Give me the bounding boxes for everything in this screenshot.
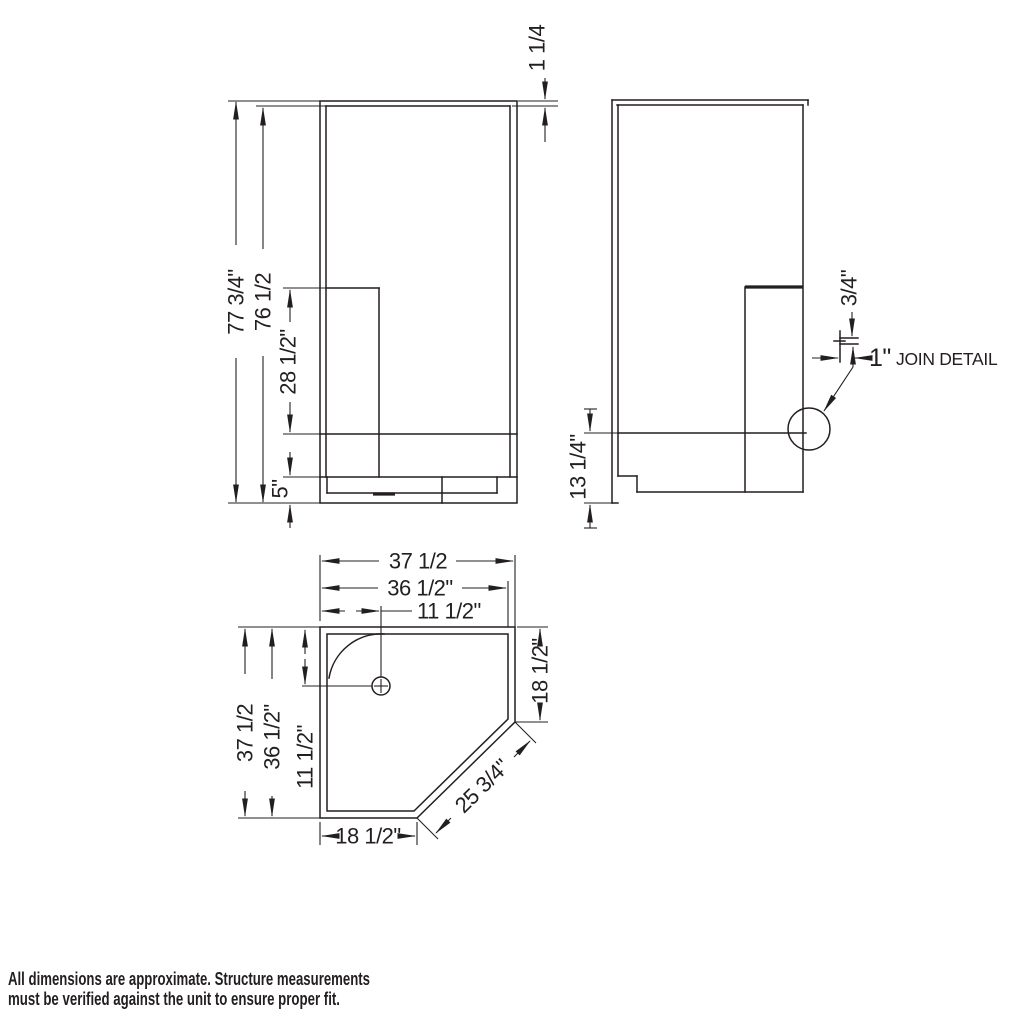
dim-ledge-height-label: 13 1/4" <box>566 434 591 499</box>
shower-enclosure-dimension-drawing: 77 3/4" 76 1/2 28 1/2" 5" 1 1/4 <box>0 0 1024 1013</box>
plan-corner-arc <box>329 634 384 678</box>
side-outline <box>612 100 808 503</box>
join-detail-callout: 3/4" 1" JOIN DETAIL <box>812 270 998 411</box>
front-base-lines <box>320 434 517 503</box>
dim-base-height-label: 5" <box>268 479 293 498</box>
dim-overall-width-label: 37 1/2 <box>389 549 447 574</box>
drain-symbol <box>372 677 390 695</box>
dim-right-return-label: 18 1/2" <box>528 638 553 703</box>
dim-join-width-label: 1" <box>869 344 891 372</box>
technical-drawing-page: 77 3/4" 76 1/2 28 1/2" 5" 1 1/4 <box>0 0 1024 1013</box>
dim-join-thickness-label: 3/4" <box>837 270 862 306</box>
plan-dimension-lines <box>245 561 540 836</box>
front-inner-outline <box>326 106 510 477</box>
dim-diagonal-front-label: 25 3/4" <box>450 754 514 818</box>
dim-inner-height-label: 76 1/2 <box>251 273 276 331</box>
footer-note: All dimensions are approximate. Structur… <box>8 969 370 1009</box>
dim-drain-offset-v-label: 11 1/2" <box>293 725 318 789</box>
front-dimension-lines <box>236 78 545 528</box>
footer-note-line2: must be verified against the unit to ens… <box>8 989 340 1009</box>
front-extension-lines <box>228 101 558 503</box>
dim-top-rail-label: 1 1/4 <box>525 25 550 72</box>
detail-circle <box>788 408 830 450</box>
dim-overall-height-label: 77 3/4" <box>224 269 249 334</box>
dim-inner-depth-label: 36 1/2" <box>260 704 285 769</box>
footer-note-line1: All dimensions are approximate. Structur… <box>8 969 370 989</box>
dim-front-return-label: 18 1/2" <box>335 824 400 849</box>
join-detail-title: JOIN DETAIL <box>896 349 998 369</box>
dim-overall-depth-label: 37 1/2 <box>233 704 258 762</box>
dim-inner-width-label: 36 1/2" <box>387 576 452 601</box>
front-elevation-view: 77 3/4" 76 1/2 28 1/2" 5" 1 1/4 <box>224 25 559 528</box>
join-detail-geometry <box>834 331 858 362</box>
front-seat-panel <box>326 288 379 477</box>
side-elevation-view: 13 1/4" 3/4" 1" JOIN DETAIL <box>566 100 998 528</box>
front-outer-outline <box>320 101 517 503</box>
dim-drain-offset-h-label: 11 1/2" <box>417 599 481 624</box>
dim-seat-height-label: 28 1/2" <box>276 329 301 394</box>
plan-view: 37 1/2 36 1/2" 11 1/2" 37 1/2 36 1/2" 11… <box>233 549 553 849</box>
